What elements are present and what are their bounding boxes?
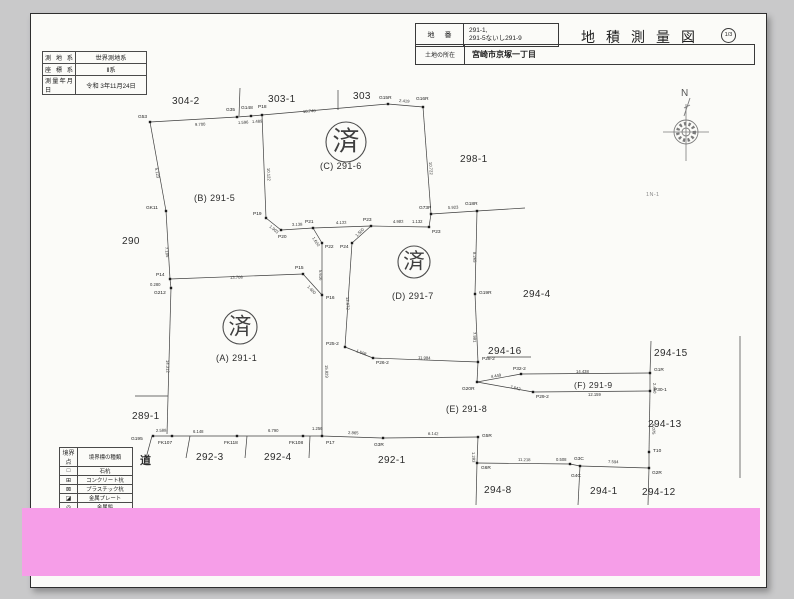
parcel-number-label: 294-16 — [488, 346, 522, 357]
survey-point-label: P32-2 — [513, 366, 526, 372]
survey-point-label: G16R — [416, 96, 429, 102]
boundary-line — [650, 341, 651, 373]
survey-point-marker — [302, 435, 304, 437]
survey-point-label: G73P — [419, 205, 431, 211]
distance-label: 1.600 — [306, 284, 317, 295]
boundary-line — [345, 243, 352, 347]
survey-point-marker — [370, 225, 372, 227]
survey-point-marker — [474, 293, 476, 295]
boundary-line — [570, 464, 580, 466]
survey-point-marker — [265, 217, 267, 219]
distance-label: 1.600 — [311, 236, 321, 248]
distance-label: 7.642 — [510, 384, 522, 392]
boundary-line — [429, 214, 431, 227]
distance-label: 5.923 — [448, 204, 459, 210]
distance-label: 8.265 — [472, 252, 477, 263]
survey-point-label: P23 — [363, 217, 372, 223]
boundary-line — [239, 88, 240, 116]
survey-point-label: P14 — [156, 272, 165, 278]
sheet-number-badge: 1/3 — [721, 28, 736, 43]
parcel-number-label: 294-8 — [484, 485, 512, 496]
parcel-number-label: (F) 291-9 — [574, 380, 613, 390]
distance-label: 2.419 — [399, 98, 410, 104]
distance-label: 13.708 — [230, 275, 244, 280]
boundary-line — [150, 117, 237, 122]
boundary-line — [262, 104, 388, 115]
table-row: 測地系 世界測地系 — [43, 52, 147, 64]
survey-point-marker — [477, 436, 479, 438]
parcel-number-label: (A) 291-1 — [216, 353, 257, 363]
survey-point-marker — [152, 435, 154, 437]
survey-point-marker — [236, 435, 238, 437]
parcel-number-label: 294-13 — [648, 419, 682, 430]
scanned-page-background: 地番 291-1, 291-5ないし291-9 地積測量図 1/3 土地の所在 … — [0, 0, 794, 599]
distance-label: 2.460 — [652, 383, 657, 394]
zumi-stamp-text: 済 — [229, 314, 252, 339]
distance-label: 12.672 — [345, 297, 351, 311]
survey-point-label: FK108 — [289, 440, 303, 446]
survey-point-marker — [428, 226, 430, 228]
meta-value-geodetic-system: 世界測地系 — [76, 52, 147, 64]
survey-point-marker — [149, 121, 151, 123]
parcel-number-label: 289-1 — [132, 411, 160, 422]
survey-point-label: P24 — [340, 244, 349, 250]
legend-row: ◪ 金属プレート — [60, 494, 133, 503]
survey-point-marker — [520, 373, 522, 375]
boundary-line — [477, 208, 525, 211]
survey-point-label: G20R — [462, 386, 475, 392]
boundary-line — [475, 294, 478, 362]
north-arrow-icon — [684, 98, 690, 116]
parcel-number-label: 294-12 — [642, 487, 676, 498]
survey-point-marker — [649, 372, 651, 374]
table-row: 測量年月日 令和 3年11月24日 — [43, 76, 147, 95]
survey-point-marker — [312, 227, 314, 229]
survey-point-label: G4C — [571, 473, 581, 479]
boundary-line — [166, 211, 170, 279]
parcel-number-label: 294-15 — [654, 348, 688, 359]
boundary-line — [477, 362, 478, 382]
boundary-line — [423, 107, 431, 214]
survey-point-marker — [344, 346, 346, 348]
parcel-number-label: 294-4 — [523, 289, 551, 300]
land-location-label: 土地の所在 — [416, 45, 465, 64]
parcel-number-label: 292-3 — [196, 452, 224, 463]
distance-label: 0.280 — [150, 282, 161, 287]
distance-label: 4.983 — [393, 219, 404, 224]
survey-point-label: FK107 — [158, 440, 172, 446]
survey-point-marker — [476, 381, 478, 383]
survey-point-marker — [165, 210, 167, 212]
survey-point-marker — [387, 103, 389, 105]
survey-point-label: G148 — [241, 105, 253, 111]
table-row: 座標系 Ⅱ系 — [43, 64, 147, 76]
parcel-number-label: 294-1 — [590, 486, 618, 497]
meta-value-coordinate-system: Ⅱ系 — [76, 64, 147, 76]
distance-label: 5.616 — [318, 270, 323, 281]
redaction-bar — [22, 508, 760, 576]
distance-label: 15.829 — [324, 365, 329, 379]
concrete-stake-icon: ⊞ — [60, 476, 78, 485]
distance-label: 10.722 — [428, 162, 434, 176]
survey-point-label: G53 — [138, 114, 147, 120]
survey-point-label: G19R — [479, 290, 492, 296]
boundary-line — [476, 463, 477, 505]
survey-point-marker — [250, 115, 252, 117]
survey-point-label: P16 — [326, 295, 335, 301]
distance-label: 6.142 — [428, 431, 439, 436]
parcel-number-label: (B) 291-5 — [194, 193, 235, 203]
distance-label: 1.256 — [312, 426, 323, 431]
distance-label: 1.283 — [471, 452, 476, 463]
legend-row: ⊠ プラスチック杭 — [60, 485, 133, 494]
boundary-line — [170, 279, 171, 288]
boundary-line — [580, 466, 649, 468]
boundary-line — [477, 463, 570, 464]
survey-point-marker — [321, 294, 323, 296]
boundary-line — [431, 211, 477, 214]
distance-label: 2.865 — [348, 430, 359, 435]
parcel-number-label: 303-1 — [268, 94, 296, 105]
survey-point-marker — [321, 435, 323, 437]
distance-label: 1.903 — [268, 224, 280, 235]
survey-point-label: P29-2 — [536, 394, 549, 400]
metal-plate-icon: ◪ — [60, 494, 78, 503]
boundary-line — [245, 436, 247, 458]
distance-label: 3.138 — [292, 222, 303, 227]
parcel-number-label: 292-4 — [264, 452, 292, 463]
survey-point-marker — [169, 278, 171, 280]
zumi-stamp-text: 済 — [403, 250, 425, 274]
distance-label: 10.740 — [303, 108, 317, 114]
distance-label: 1.489 — [252, 118, 263, 124]
boundary-line — [578, 466, 580, 505]
survey-point-marker — [476, 210, 478, 212]
survey-point-label: G1R — [654, 367, 664, 373]
legend-row: □ 石杭 — [60, 467, 133, 476]
boundary-line — [309, 436, 310, 458]
survey-point-label: G3R — [374, 442, 384, 448]
survey-point-label: G5R — [482, 433, 492, 439]
boundary-marker-legend: 境界点 境界標の種類 □ 石杭 ⊞ コンクリート杭 ⊠ プラスチック杭 ◪ 金属… — [59, 447, 133, 512]
land-location-box: 土地の所在 宮崎市京塚一丁目 — [415, 44, 755, 65]
survey-point-label: G212 — [154, 290, 166, 296]
distance-label: 7.981 — [472, 332, 477, 343]
survey-point-marker — [170, 287, 172, 289]
legend-type-stone-stake: 石杭 — [78, 467, 133, 476]
legend-type-metal-plate: 金属プレート — [78, 494, 133, 503]
parcel-number-label: 292-1 — [378, 455, 406, 466]
survey-point-marker — [422, 106, 424, 108]
survey-point-label: P20 — [278, 234, 287, 240]
survey-point-marker — [648, 451, 650, 453]
distance-label: 7.594 — [608, 459, 619, 464]
distance-label: 11.218 — [518, 457, 531, 462]
distance-label: 6.148 — [193, 429, 204, 434]
survey-point-marker — [302, 273, 304, 275]
survey-point-marker — [579, 465, 581, 467]
survey-point-label: P17 — [326, 440, 335, 446]
survey-point-label: P15 — [295, 265, 304, 271]
survey-point-label: G3C — [574, 456, 584, 462]
survey-point-marker — [171, 435, 173, 437]
parcel-number-label: 303 — [353, 91, 371, 102]
distance-label: 1.596 — [238, 119, 249, 125]
boundary-line — [251, 115, 262, 116]
distance-label: 6.790 — [268, 428, 279, 433]
boundary-line — [477, 382, 533, 392]
survey-meta-table: 測地系 世界測地系 座標系 Ⅱ系 測量年月日 令和 3年11月24日 — [42, 51, 147, 95]
survey-point-label: G2R — [652, 470, 662, 476]
survey-point-label: P25-2 — [326, 341, 339, 347]
survey-point-label: P19 — [253, 211, 262, 217]
distance-label: 14.312 — [165, 360, 170, 374]
survey-point-label: P21 — [305, 219, 314, 225]
zumi-stamp-text: 済 — [333, 126, 360, 156]
distance-label: 4.133 — [336, 220, 347, 225]
distance-label: 9.700 — [195, 121, 206, 127]
boundary-line — [237, 116, 251, 117]
stone-stake-icon: □ — [60, 467, 78, 476]
boundary-line — [388, 104, 423, 107]
meta-label-survey-date: 測量年月日 — [43, 76, 76, 95]
distance-label: 14.438 — [576, 369, 589, 374]
survey-point-label: G6R — [481, 465, 491, 471]
lot-number-value: 291-1, 291-5ないし291-9 — [464, 24, 558, 46]
survey-point-label: G195 — [131, 436, 143, 442]
distance-label: 5.123 — [154, 167, 161, 179]
survey-point-label: P23 — [432, 229, 441, 235]
lot-number-line2: 291-5ないし291-9 — [469, 35, 558, 43]
legend-header-type: 境界標の種類 — [78, 448, 133, 467]
boundary-line — [383, 437, 478, 438]
survey-point-marker — [569, 463, 571, 465]
survey-point-marker — [430, 213, 432, 215]
distance-label: 0.508 — [556, 457, 567, 462]
north-label: N — [681, 88, 688, 99]
parcel-number-label: (D) 291-7 — [392, 291, 434, 301]
parcel-number-label: 290 — [122, 236, 140, 247]
survey-point-marker — [372, 357, 374, 359]
survey-point-marker — [351, 242, 353, 244]
survey-point-label: P18 — [258, 104, 267, 110]
survey-point-marker — [648, 467, 650, 469]
parcel-number-label: (C) 291-6 — [320, 161, 362, 171]
survey-point-marker — [382, 437, 384, 439]
north-compass: N — [663, 88, 709, 161]
parcel-number-label: (E) 291-8 — [446, 404, 487, 414]
boundary-line — [186, 436, 190, 458]
legend-header-row: 境界点 境界標の種類 — [60, 448, 133, 467]
distance-label: 10.122 — [266, 168, 272, 182]
boundary-line — [371, 226, 429, 227]
distance-label: 12.159 — [588, 392, 601, 397]
distance-label: 11.984 — [418, 355, 431, 360]
parcel-number-label: 298-1 — [460, 154, 488, 165]
parcel-number-label: 304-2 — [172, 96, 200, 107]
survey-point-label: GK11 — [146, 205, 158, 211]
parcel-number-label: 道 — [140, 453, 151, 467]
meta-label-geodetic-system: 測地系 — [43, 52, 76, 64]
legend-header-point: 境界点 — [60, 448, 78, 467]
meta-label-coordinate-system: 座標系 — [43, 64, 76, 76]
legend-row: ⊞ コンクリート杭 — [60, 476, 133, 485]
survey-point-label: P26-2 — [376, 360, 389, 366]
boundary-line — [281, 228, 313, 230]
survey-point-label: FK118 — [224, 440, 238, 446]
meta-value-survey-date: 令和 3年11月24日 — [76, 76, 147, 95]
survey-point-label: G35 — [226, 107, 235, 113]
survey-point-label: G15R — [379, 95, 392, 101]
distance-label: 2.588 — [156, 428, 167, 433]
survey-point-marker — [236, 116, 238, 118]
parcel-number-label: 1N-1 — [646, 192, 660, 198]
land-location-value: 宮崎市京塚一丁目 — [465, 45, 754, 64]
boundary-line — [322, 436, 383, 438]
survey-point-marker — [477, 361, 479, 363]
lot-number-line1: 291-1, — [469, 27, 558, 35]
distance-label: 7.185 — [164, 247, 170, 259]
lot-number-label: 地番 — [416, 24, 464, 46]
boundary-line — [262, 115, 266, 218]
legend-type-plastic-stake: プラスチック杭 — [78, 485, 133, 494]
distance-label: 1.132 — [412, 219, 423, 224]
survey-point-label: T10 — [653, 448, 662, 454]
survey-point-marker — [532, 391, 534, 393]
survey-point-marker — [261, 114, 263, 116]
survey-point-label: P22 — [325, 244, 334, 250]
survey-point-marker — [649, 390, 651, 392]
plastic-stake-icon: ⊠ — [60, 485, 78, 494]
survey-point-label: G18R — [465, 201, 478, 207]
legend-type-concrete-stake: コンクリート杭 — [78, 476, 133, 485]
